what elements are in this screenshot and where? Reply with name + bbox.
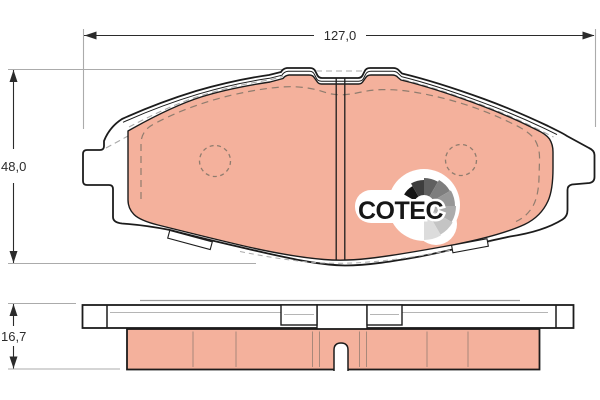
width-dimension: 127,0 [84,28,595,43]
brake-pad-drawing: COTEC 127,0 48,0 16,7 [0,0,600,400]
technical-drawing-page: COTEC 127,0 48,0 16,7 [0,0,600,400]
height-dimension: 48,0 [1,70,26,263]
thickness-dimension: 16,7 [1,304,26,369]
front-view: COTEC [83,68,595,266]
friction-notch [334,343,348,371]
thickness-label: 16,7 [1,329,26,344]
width-label: 127,0 [324,28,357,43]
bottom-view [83,301,574,372]
logo-text: COTEC [358,197,443,225]
height-label: 48,0 [1,159,26,174]
center-boss [317,305,367,330]
